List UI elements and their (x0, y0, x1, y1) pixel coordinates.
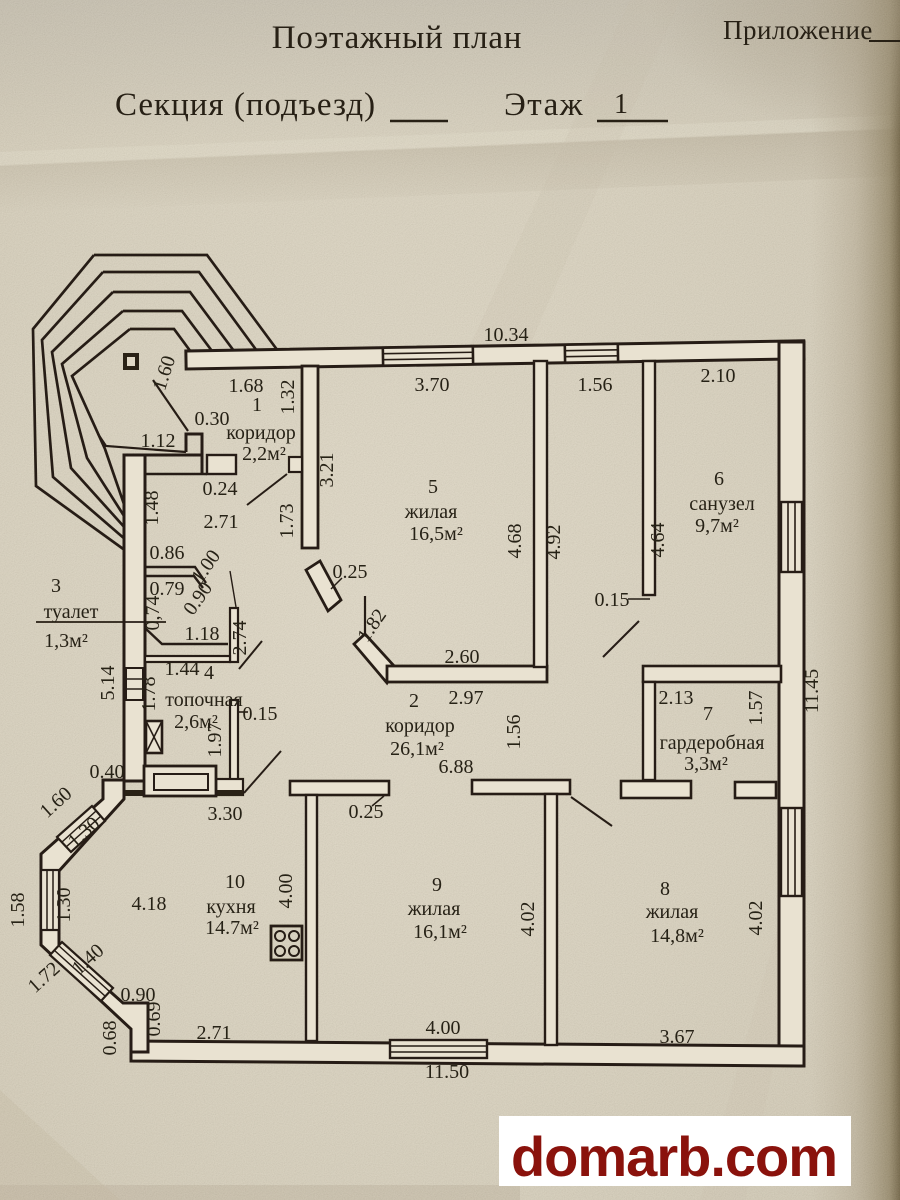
svg-text:топочная: топочная (165, 689, 243, 711)
svg-text:11.45: 11.45 (801, 669, 823, 713)
svg-text:3.21: 3.21 (316, 453, 338, 488)
svg-text:1,3м²: 1,3м² (44, 630, 88, 652)
svg-text:4.00: 4.00 (275, 874, 297, 909)
svg-text:7: 7 (703, 703, 713, 725)
svg-text:domarb.com: domarb.com (511, 1125, 837, 1188)
svg-text:9: 9 (432, 874, 442, 896)
svg-text:коридор: коридор (226, 422, 296, 444)
svg-text:10.34: 10.34 (484, 324, 529, 346)
svg-text:0.15: 0.15 (595, 589, 630, 611)
svg-text:жилая: жилая (404, 501, 458, 523)
svg-text:0.86: 0.86 (150, 542, 185, 564)
svg-text:11.50: 11.50 (425, 1061, 469, 1083)
svg-text:4.02: 4.02 (745, 901, 767, 936)
svg-text:2.97: 2.97 (449, 687, 484, 709)
svg-text:Приложение: Приложение (723, 15, 873, 45)
svg-text:4.68: 4.68 (504, 524, 526, 559)
svg-text:Секция (подъезд): Секция (подъезд) (115, 87, 376, 123)
svg-text:16,5м²: 16,5м² (409, 523, 463, 545)
svg-text:1.56: 1.56 (503, 715, 525, 750)
svg-text:гардеробная: гардеробная (660, 732, 765, 754)
svg-text:1: 1 (614, 89, 628, 120)
svg-text:1.56: 1.56 (578, 374, 613, 396)
svg-text:0.25: 0.25 (349, 801, 384, 823)
svg-text:2.74: 2.74 (229, 621, 251, 656)
svg-text:1.48: 1.48 (141, 491, 163, 526)
svg-text:3: 3 (51, 575, 61, 597)
svg-text:6: 6 (714, 468, 724, 490)
svg-text:кухня: кухня (206, 896, 255, 918)
svg-text:1.44: 1.44 (165, 658, 200, 680)
svg-text:2.13: 2.13 (659, 687, 694, 709)
svg-text:3.30: 3.30 (208, 803, 243, 825)
svg-text:3.70: 3.70 (415, 374, 450, 396)
svg-text:9,7м²: 9,7м² (695, 515, 739, 537)
svg-text:2.60: 2.60 (445, 646, 480, 668)
svg-text:коридор: коридор (385, 715, 455, 737)
svg-text:5.14: 5.14 (97, 666, 119, 701)
svg-text:3.67: 3.67 (660, 1026, 695, 1048)
svg-text:2.71: 2.71 (197, 1022, 232, 1044)
svg-text:1.58: 1.58 (7, 893, 29, 928)
svg-text:4.64: 4.64 (647, 523, 669, 558)
svg-text:Поэтажный план: Поэтажный план (272, 20, 523, 56)
svg-text:Этаж: Этаж (504, 87, 584, 123)
svg-text:0.25: 0.25 (333, 561, 368, 583)
svg-text:16,1м²: 16,1м² (413, 921, 467, 943)
svg-text:4: 4 (204, 662, 214, 684)
svg-text:туалет: туалет (44, 601, 99, 623)
svg-text:1.57: 1.57 (745, 691, 767, 726)
svg-text:8: 8 (660, 878, 670, 900)
svg-text:26,1м²: 26,1м² (390, 738, 444, 760)
svg-text:10: 10 (225, 871, 245, 893)
svg-text:1.73: 1.73 (276, 504, 298, 539)
svg-text:2: 2 (409, 690, 419, 712)
svg-text:2.10: 2.10 (701, 365, 736, 387)
svg-text:санузел: санузел (689, 493, 754, 515)
svg-text:1: 1 (252, 394, 262, 416)
svg-text:2,2м²: 2,2м² (242, 443, 286, 465)
svg-text:4.00: 4.00 (426, 1017, 461, 1039)
svg-text:1.78: 1.78 (138, 677, 160, 712)
svg-text:1.18: 1.18 (185, 623, 220, 645)
svg-text:1.12: 1.12 (141, 430, 176, 452)
svg-text:0.15: 0.15 (243, 703, 278, 725)
svg-text:4.92: 4.92 (543, 525, 565, 560)
svg-text:жилая: жилая (407, 898, 461, 920)
svg-text:1.97: 1.97 (204, 723, 226, 758)
svg-text:жилая: жилая (645, 901, 699, 923)
svg-text:3,3м²: 3,3м² (684, 753, 728, 775)
svg-text:0.24: 0.24 (203, 478, 238, 500)
svg-text:5: 5 (428, 476, 438, 498)
svg-text:4.02: 4.02 (517, 902, 539, 937)
svg-text:2.71: 2.71 (204, 511, 239, 533)
svg-text:14,8м²: 14,8м² (650, 925, 704, 947)
svg-text:0.68: 0.68 (99, 1021, 121, 1056)
svg-text:0.40: 0.40 (90, 761, 125, 783)
svg-text:4.18: 4.18 (132, 893, 167, 915)
svg-text:0.69: 0.69 (143, 1002, 165, 1037)
svg-text:0.30: 0.30 (195, 408, 230, 430)
svg-text:0,74: 0,74 (142, 596, 164, 631)
svg-text:1.32: 1.32 (277, 380, 299, 415)
svg-text:14.7м²: 14.7м² (205, 917, 259, 939)
svg-text:1.30: 1.30 (53, 888, 75, 923)
